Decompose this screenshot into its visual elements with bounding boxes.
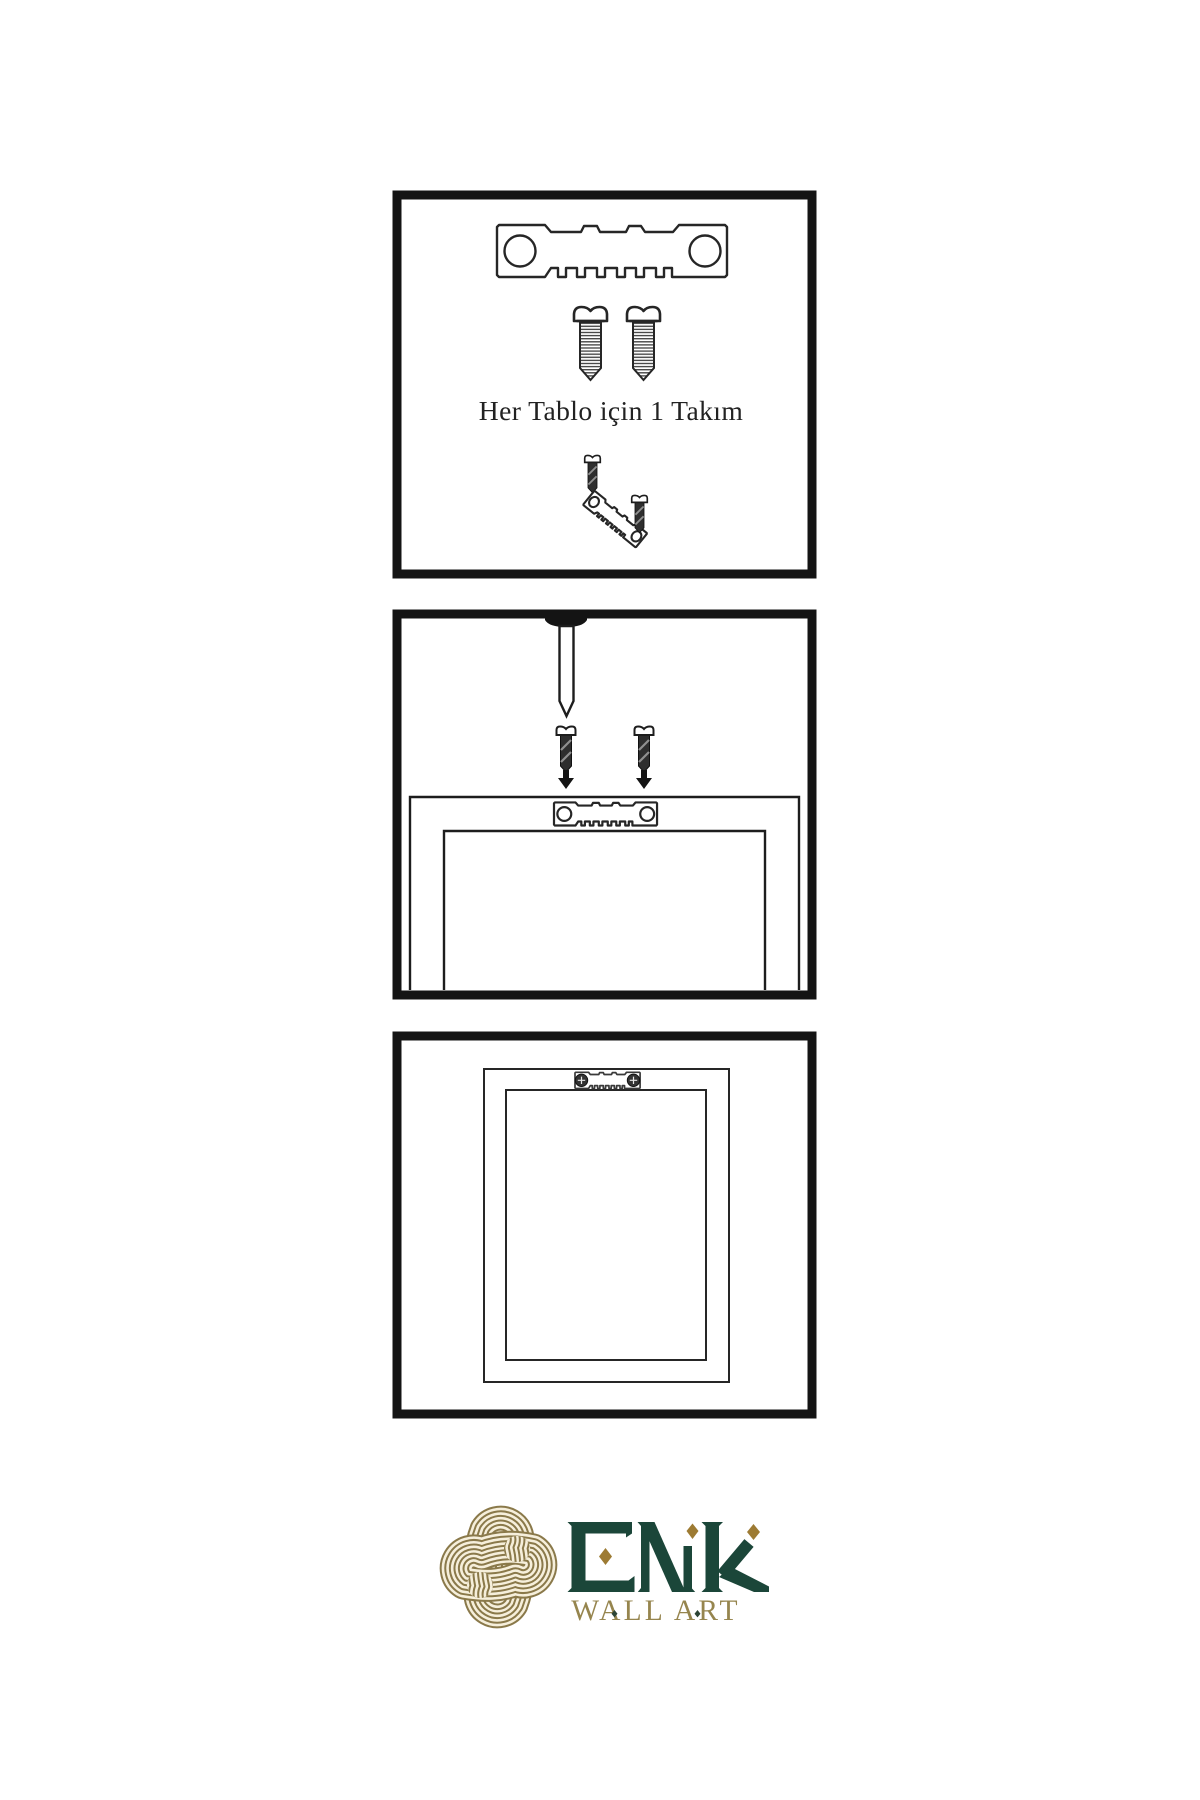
svg-text:Her Tablo için 1 Takım: Her Tablo için 1 Takım — [479, 395, 744, 426]
svg-text:WALL ART: WALL ART — [571, 1595, 740, 1627]
